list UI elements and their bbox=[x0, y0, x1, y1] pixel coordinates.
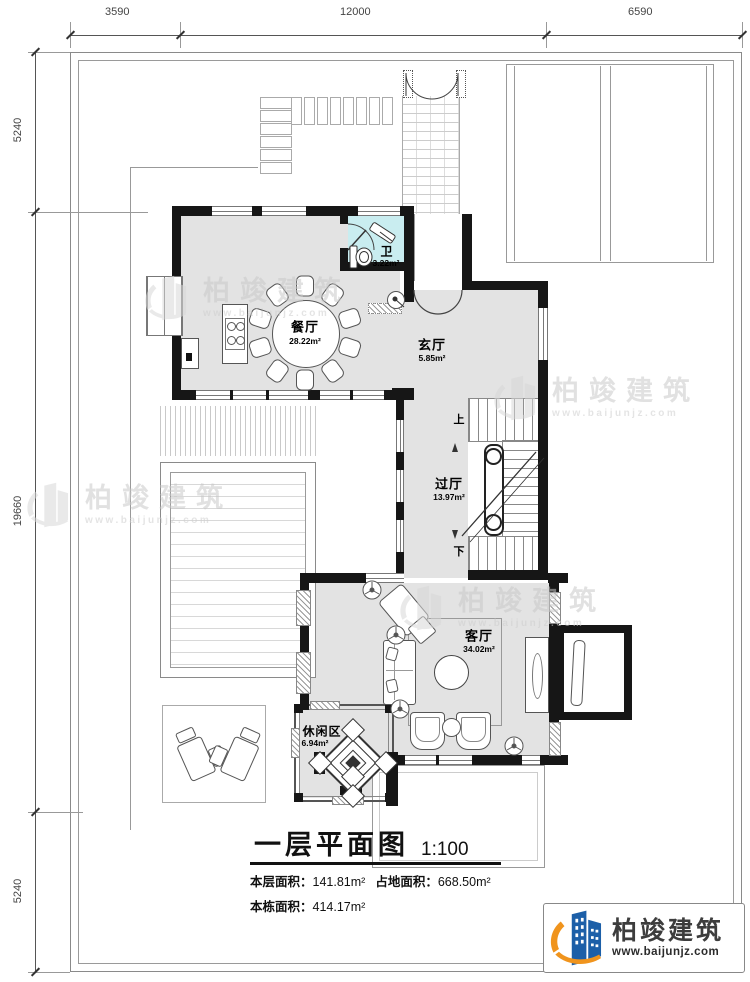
gate-post bbox=[456, 70, 466, 98]
room-area-foyer: 5.85m² bbox=[419, 353, 446, 363]
window bbox=[262, 206, 306, 216]
yard-line bbox=[130, 167, 131, 830]
window bbox=[196, 390, 308, 400]
hatched-window bbox=[296, 652, 311, 694]
washbasin bbox=[387, 291, 405, 309]
bay-window bbox=[146, 276, 183, 336]
burner bbox=[236, 336, 245, 345]
company-logo: 柏竣建筑 www.baijunjz.com bbox=[543, 903, 745, 973]
wood-deck bbox=[160, 406, 318, 456]
room-area-bath: 3.22m² bbox=[373, 258, 400, 268]
sink-basin bbox=[186, 353, 192, 361]
leisure-bench bbox=[314, 752, 325, 774]
hatched-window bbox=[332, 796, 364, 805]
dim-left-1: 5240 bbox=[12, 100, 24, 160]
room-area-dining: 28.22m² bbox=[289, 336, 321, 346]
window bbox=[396, 470, 404, 502]
room-label-bath: 卫 bbox=[380, 243, 393, 260]
sofa bbox=[383, 640, 416, 705]
hatched-window bbox=[296, 590, 311, 626]
room-area-hall: 13.97m² bbox=[433, 492, 465, 502]
stairs-up-label: 上 bbox=[454, 411, 465, 427]
room-label-hall: 过厅 bbox=[435, 474, 463, 493]
armchair bbox=[456, 712, 491, 750]
room-area-leisure: 6.94m² bbox=[302, 738, 329, 748]
top-dimension-line bbox=[70, 35, 743, 36]
window bbox=[212, 206, 252, 216]
hatched-window bbox=[549, 722, 561, 756]
hatched-window bbox=[310, 701, 340, 710]
room-label-living: 客厅 bbox=[465, 626, 493, 645]
tv-cabinet bbox=[525, 637, 549, 713]
logo-name: 柏竣建筑 bbox=[612, 918, 724, 946]
window bbox=[396, 520, 404, 552]
title-block: 一层平面图 1:100 本层面积：141.81m²占地面积：668.50m² 本… bbox=[250, 832, 501, 915]
burner bbox=[227, 336, 236, 345]
gate-post bbox=[403, 70, 413, 98]
leisure-bench bbox=[340, 786, 362, 795]
logo-icon bbox=[548, 908, 612, 968]
floor-plan: 3590 12000 6590 5240 19660 5240 bbox=[0, 0, 750, 982]
dim-left-2: 19660 bbox=[12, 481, 24, 541]
burner bbox=[227, 322, 236, 331]
area-line-1: 本层面积：141.81m²占地面积：668.50m² bbox=[250, 871, 501, 890]
burner bbox=[236, 322, 245, 331]
dim-top-2: 12000 bbox=[340, 6, 371, 18]
yard-line bbox=[130, 167, 258, 168]
room-area-living: 34.02m² bbox=[463, 644, 495, 654]
brick-path bbox=[402, 96, 460, 214]
armchair bbox=[410, 712, 445, 750]
dim-top-1: 3590 bbox=[105, 6, 129, 18]
window bbox=[522, 755, 540, 765]
dim-left-3: 5240 bbox=[12, 861, 24, 921]
window bbox=[366, 573, 404, 583]
room-label-dining: 餐厅 bbox=[291, 317, 319, 336]
window bbox=[358, 206, 400, 216]
coffee-table bbox=[434, 655, 469, 690]
page-title: 一层平面图 bbox=[254, 832, 409, 859]
window bbox=[396, 420, 404, 452]
logo-url: www.baijunjz.com bbox=[612, 946, 724, 958]
stair-flight-upper bbox=[468, 398, 542, 442]
left-dimension-line bbox=[35, 52, 36, 972]
side-table bbox=[442, 718, 461, 737]
dim-top-3: 6590 bbox=[628, 6, 652, 18]
room-label-foyer: 玄厅 bbox=[418, 335, 446, 354]
hatched-window bbox=[549, 592, 561, 624]
stairs-down-label: 下 bbox=[454, 543, 465, 559]
pool-inner bbox=[170, 472, 306, 668]
railing-post bbox=[485, 514, 502, 531]
railing-post bbox=[485, 448, 502, 465]
hatched-window bbox=[291, 728, 300, 758]
room-label-leisure: 休闲区 bbox=[302, 723, 341, 740]
window bbox=[538, 308, 548, 360]
lounge-area bbox=[162, 705, 266, 803]
area-line-2: 本栋面积：414.17m² bbox=[250, 896, 501, 915]
drawing-scale: 1:100 bbox=[421, 840, 469, 859]
entry-porch bbox=[414, 214, 464, 281]
